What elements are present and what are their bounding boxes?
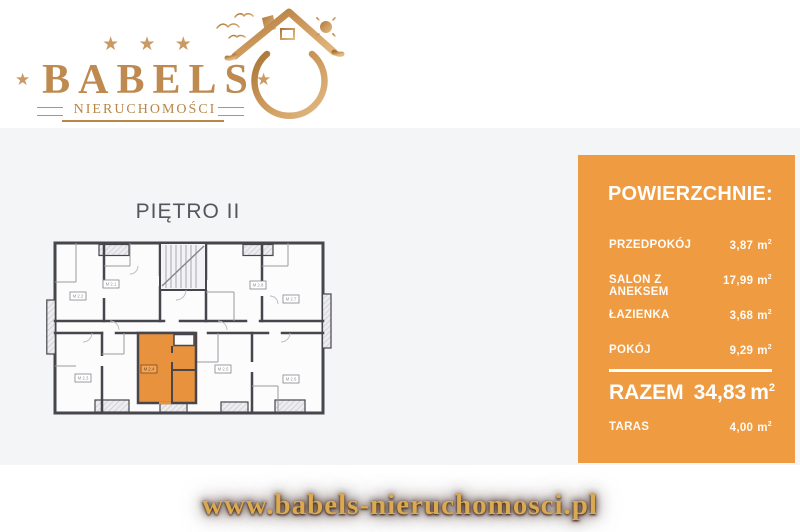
brand-subtitle: NIERUCHOMOŚCI [70, 102, 220, 118]
terrace-unit-sup: 2 [768, 421, 772, 428]
footer: www.babels-nieruchomosci.pl [0, 465, 800, 532]
header: ★ ★ ★ ★ BABELS ★ NIERUCHOMOŚCI [0, 0, 800, 128]
unit-label-highlighted: M 2.4 [141, 365, 157, 373]
area-unit: m [757, 345, 768, 357]
area-row: POKÓJ 9,29m2 [609, 344, 772, 357]
total-label: RAZEM [609, 381, 684, 405]
svg-text:M 2.1: M 2.1 [106, 282, 117, 287]
terrace-row: TARAS 4,00m2 [609, 421, 772, 434]
brand-logo: ★ ★ ★ ★ BABELS ★ NIERUCHOMOŚCI [0, 0, 380, 128]
total-unit-sup: 2 [769, 382, 775, 394]
area-number: 3,87 [730, 240, 754, 252]
area-row: SALON Z ANEKSEM 17,99m2 [609, 274, 772, 298]
area-label: ŁAZIENKA [609, 309, 670, 322]
svg-text:M 2.8: M 2.8 [253, 283, 264, 288]
total-value: 34,83m2 [694, 381, 775, 405]
area-value: 3,68m2 [730, 309, 772, 322]
area-value: 3,87m2 [730, 239, 772, 252]
window-icon [281, 29, 294, 39]
total-row: RAZEM 34,83m2 [609, 381, 775, 405]
area-label: SALON Z ANEKSEM [609, 274, 723, 298]
content-area: PIĘTRO II [0, 128, 800, 465]
flyer-page: ★ ★ ★ ★ BABELS ★ NIERUCHOMOŚCI [0, 0, 800, 532]
decorative-underline [62, 120, 224, 122]
svg-text:M 2.5: M 2.5 [218, 367, 229, 372]
unit-label: M 2.7 [283, 295, 299, 303]
total-unit: m [750, 381, 769, 404]
area-unit: m [757, 240, 768, 252]
panel-heading: POWIERZCHNIE: [608, 183, 773, 206]
terrace-unit: m [757, 422, 768, 434]
terrace-value: 4,00m2 [730, 421, 772, 434]
terrace-label: TARAS [609, 421, 649, 434]
area-value: 9,29m2 [730, 344, 772, 357]
area-unit-sup: 2 [768, 344, 772, 351]
area-unit-sup: 2 [768, 309, 772, 316]
unit-label: M 2.6 [283, 375, 299, 383]
svg-text:M 2.3: M 2.3 [78, 376, 89, 381]
stars-row-icon: ★ ★ ★ [92, 33, 202, 56]
website-url: www.babels-nieruchomosci.pl [0, 489, 800, 522]
sun-icon [313, 14, 339, 40]
area-unit-sup: 2 [768, 274, 772, 281]
area-number: 3,68 [730, 310, 754, 322]
crescent-icon [255, 54, 325, 116]
svg-text:M 2.2: M 2.2 [73, 294, 84, 299]
areas-panel: POWIERZCHNIE: PRZEDPOKÓJ 3,87m2 SALON Z … [578, 155, 795, 463]
area-number: 9,29 [730, 345, 754, 357]
area-number: 17,99 [723, 275, 753, 287]
area-row: PRZEDPOKÓJ 3,87m2 [609, 239, 772, 252]
birds-icon [217, 14, 253, 38]
panel-divider [609, 369, 772, 372]
area-unit: m [757, 275, 768, 287]
area-row: ŁAZIENKA 3,68m2 [609, 309, 772, 322]
unit-label: M 2.5 [215, 365, 231, 373]
unit-label: M 2.2 [70, 292, 86, 300]
svg-text:M 2.7: M 2.7 [286, 297, 297, 302]
area-label: PRZEDPOKÓJ [609, 239, 691, 252]
decorative-lines [37, 107, 63, 116]
area-value: 17,99m2 [723, 274, 772, 298]
staircase [160, 243, 206, 290]
terrace-number: 4,00 [730, 422, 754, 434]
unit-label: M 2.1 [103, 280, 119, 288]
house-icon [213, 4, 349, 124]
svg-text:M 2.6: M 2.6 [286, 377, 297, 382]
area-label: POKÓJ [609, 344, 651, 357]
area-unit-sup: 2 [768, 239, 772, 246]
floor-title: PIĘTRO II [88, 200, 288, 224]
area-unit: m [757, 310, 768, 322]
floor-plan: M 2.2 M 2.1 M 2.8 M 2.7 M 2.3 M 2.4 M 2.… [46, 236, 332, 422]
star-icon: ★ [15, 70, 30, 90]
unit-label: M 2.3 [75, 374, 91, 382]
svg-text:M 2.4: M 2.4 [144, 367, 155, 372]
unit-label: M 2.8 [250, 281, 266, 289]
total-number: 34,83 [694, 381, 747, 404]
